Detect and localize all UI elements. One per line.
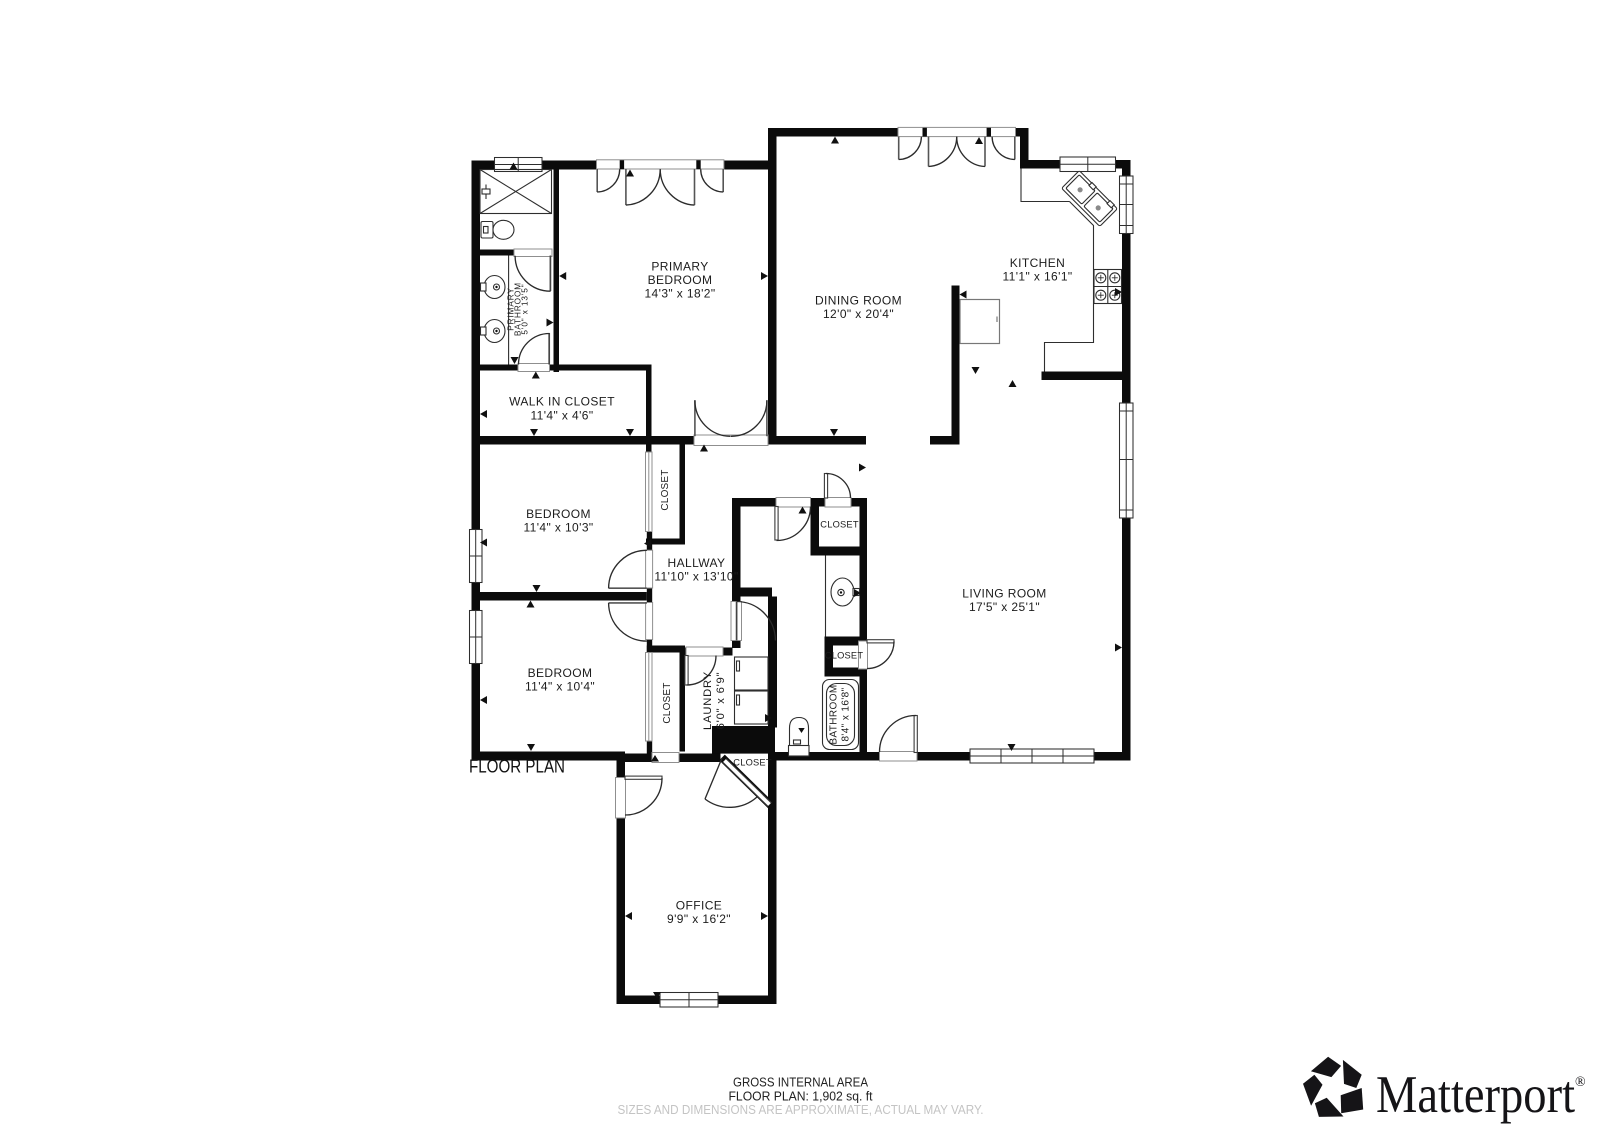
svg-text:GROSS INTERNAL AREA: GROSS INTERNAL AREA (733, 1075, 868, 1090)
svg-text:KITCHEN: KITCHEN (1010, 256, 1065, 270)
svg-text:SIZES AND DIMENSIONS ARE APPRO: SIZES AND DIMENSIONS ARE APPROXIMATE, AC… (618, 1102, 984, 1117)
svg-text:Matterport: Matterport (1376, 1066, 1575, 1124)
svg-text:HALLWAY: HALLWAY (668, 556, 726, 570)
svg-text:9'9" x 16'2": 9'9" x 16'2" (667, 912, 731, 926)
svg-text:17'5" x 25'1": 17'5" x 25'1" (969, 600, 1040, 614)
svg-text:®: ® (1575, 1075, 1586, 1090)
svg-text:CLOSET: CLOSET (820, 520, 859, 530)
svg-text:CLOSET: CLOSET (662, 682, 673, 723)
svg-text:OFFICE: OFFICE (676, 899, 722, 913)
svg-text:11'1" x 16'1": 11'1" x 16'1" (1002, 270, 1072, 284)
svg-text:8'4" x 16'8": 8'4" x 16'8" (841, 687, 852, 741)
svg-text:11'10" x 13'10": 11'10" x 13'10" (654, 570, 738, 584)
svg-text:DINING ROOM: DINING ROOM (815, 294, 902, 308)
svg-text:LIVING ROOM: LIVING ROOM (962, 587, 1046, 601)
svg-text:5'0" x 13'5": 5'0" x 13'5" (521, 283, 530, 334)
svg-text:BEDROOM: BEDROOM (648, 273, 713, 287)
svg-text:BEDROOM: BEDROOM (528, 666, 593, 680)
svg-text:CLOSET: CLOSET (825, 651, 864, 661)
svg-text:12'0" x 20'4": 12'0" x 20'4" (823, 307, 894, 321)
svg-text:11'4" x 4'6": 11'4" x 4'6" (530, 409, 593, 423)
svg-text:PRIMARY: PRIMARY (651, 260, 708, 274)
svg-text:11'4" x 10'4": 11'4" x 10'4" (525, 680, 595, 694)
svg-text:CLOSET: CLOSET (660, 469, 671, 510)
svg-text:6'0" x 6'9": 6'0" x 6'9" (715, 672, 727, 730)
svg-text:CLOSET: CLOSET (733, 758, 772, 768)
svg-text:WALK IN CLOSET: WALK IN CLOSET (509, 395, 615, 409)
svg-text:FLOOR PLAN: FLOOR PLAN (469, 757, 565, 777)
svg-text:11'4" x 10'3": 11'4" x 10'3" (523, 521, 593, 535)
svg-text:BEDROOM: BEDROOM (526, 507, 591, 521)
svg-text:LAUNDRY: LAUNDRY (702, 671, 714, 730)
svg-text:BATHROOM: BATHROOM (829, 684, 840, 744)
svg-text:14'3" x 18'2": 14'3" x 18'2" (644, 287, 715, 301)
